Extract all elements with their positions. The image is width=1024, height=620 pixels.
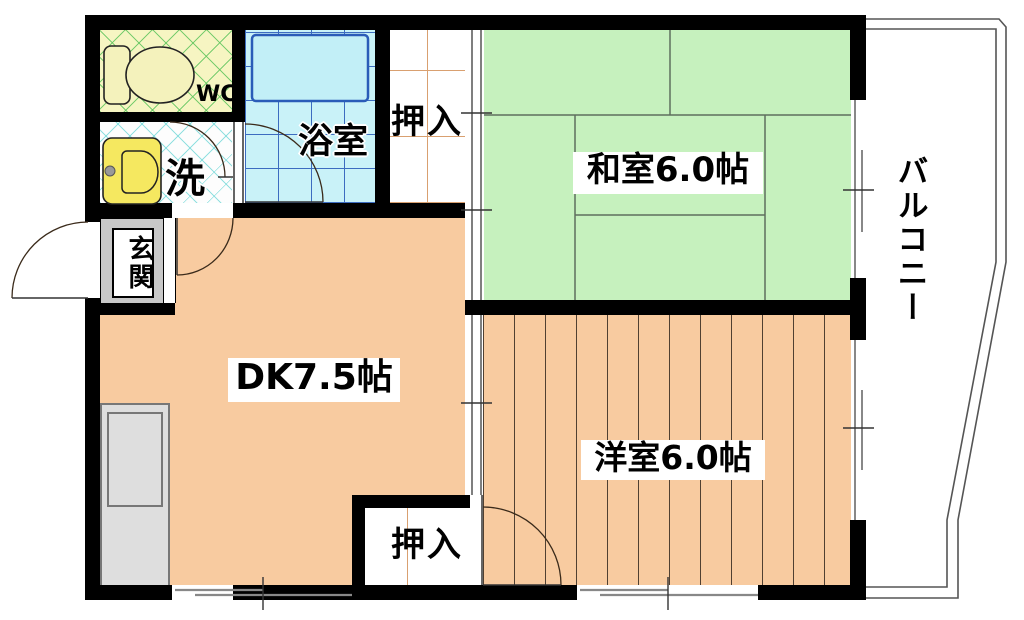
sliding-door-tick — [461, 113, 492, 403]
window-tick — [263, 577, 668, 610]
toilet-icon — [104, 46, 194, 104]
door-leaf — [12, 122, 561, 585]
balcony-label: バルコニー — [893, 155, 926, 375]
floor-plan: 和室6.0帖 洋室6.0帖 DK7.5帖 WC 洗 浴室 押入 押入 玄関 バル… — [0, 0, 1024, 620]
closet-bottom-label: 押入 — [391, 528, 463, 564]
entrance-label: 玄関 — [112, 228, 154, 298]
balcony-outline — [866, 19, 1006, 598]
wc-label: WC — [196, 83, 236, 106]
dining-kitchen-label: DK7.5帖 — [228, 358, 400, 402]
japanese-room-label: 和室6.0帖 — [573, 152, 763, 194]
window-glyph — [855, 100, 862, 520]
bathroom-label: 浴室 — [298, 124, 368, 161]
bathtub — [252, 35, 368, 101]
sliding-door — [472, 30, 481, 495]
washroom-label: 洗 — [165, 158, 205, 200]
closet-top-label: 押入 — [391, 105, 463, 141]
western-room-label: 洋室6.0帖 — [581, 440, 765, 480]
window-tick — [843, 190, 874, 428]
sink-icon — [103, 138, 161, 204]
door-arc — [12, 122, 561, 585]
floorplan-linework — [0, 0, 1024, 620]
